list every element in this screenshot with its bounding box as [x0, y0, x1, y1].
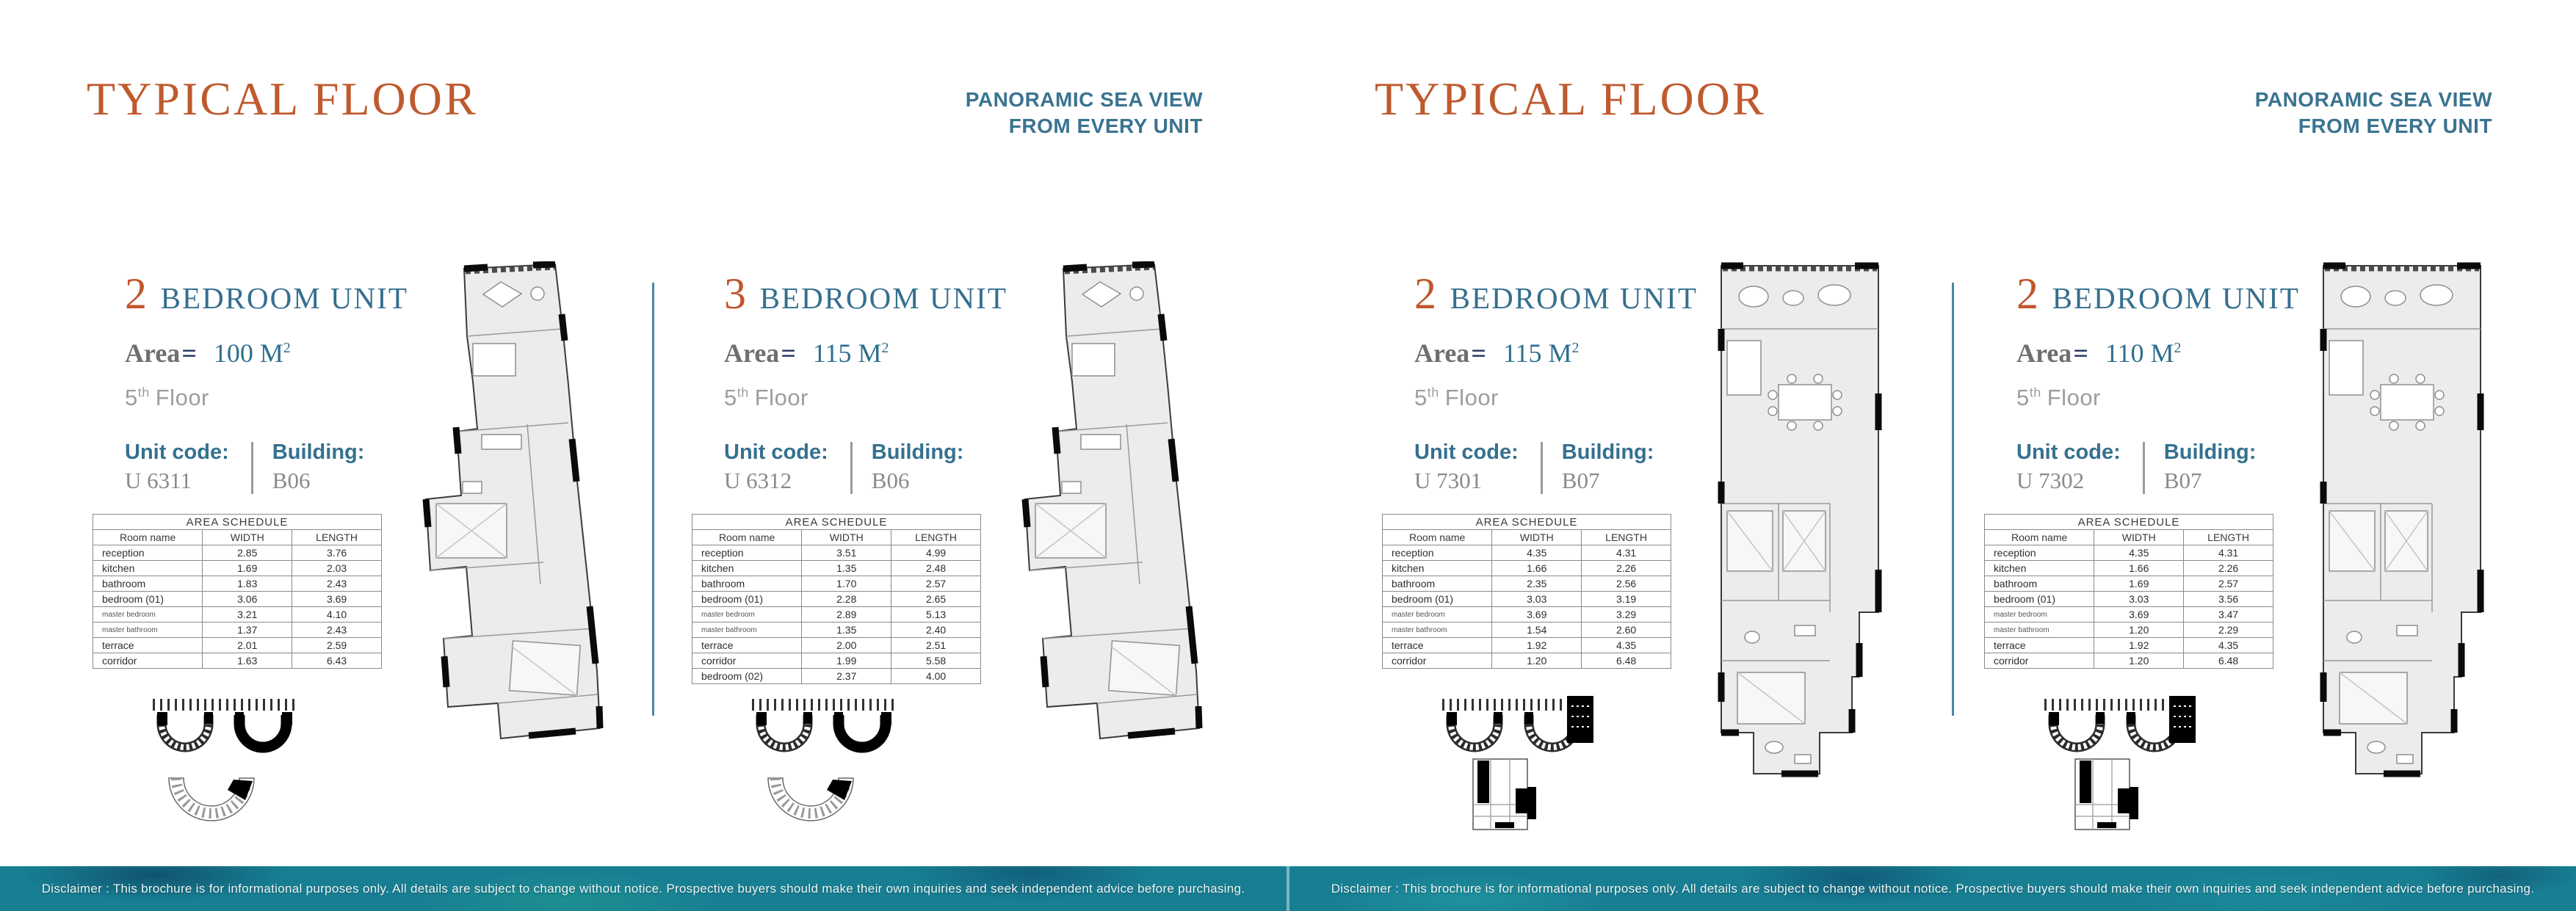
unit-type-heading: 3 BEDROOM UNIT	[724, 269, 1007, 319]
table-row: reception2.853.76	[93, 545, 382, 561]
bedroom-unit-label: BEDROOM UNIT	[161, 281, 408, 315]
table-row: terrace1.924.35	[1383, 638, 1671, 653]
table-row: kitchen1.662.26	[1383, 561, 1671, 576]
table-row: master bedroom3.214.10	[93, 607, 382, 623]
unit-code-block: Unit code: U 6311	[125, 440, 229, 494]
unit-type-heading: 2 BEDROOM UNIT	[1414, 269, 1698, 319]
floor-number: 5	[2016, 385, 2030, 410]
table-row: bathroom2.352.56	[1383, 576, 1671, 592]
tagline: PANORAMIC SEA VIEW FROM EVERY UNIT	[2177, 87, 2492, 139]
panel-divider-line	[652, 283, 654, 716]
table-row: master bedroom2.895.13	[692, 607, 981, 623]
building-label: Building:	[872, 440, 964, 465]
area-label: Area	[724, 338, 779, 368]
table-header: Room name	[1383, 530, 1492, 545]
tagline-line-2: FROM EVERY UNIT	[2177, 113, 2492, 139]
table-cell: 2.28	[802, 592, 891, 607]
table-title: AREA SCHEDULE	[1985, 515, 2273, 530]
table-cell: terrace	[93, 638, 203, 653]
table-cell: 6.43	[292, 653, 382, 669]
table-header: WIDTH	[2094, 530, 2184, 545]
table-title: AREA SCHEDULE	[692, 515, 981, 530]
footer-strip-left: Disclaimer : This brochure is for inform…	[0, 866, 1287, 911]
floor-ordinal: th	[737, 385, 749, 400]
table-cell: master bedroom	[1985, 607, 2094, 623]
brochure-spread: TYPICAL FLOOR PANORAMIC SEA VIEW FROM EV…	[0, 0, 2576, 911]
building-value: B06	[272, 468, 365, 494]
table-row: reception4.354.31	[1383, 545, 1671, 561]
area-number: 100 M	[214, 338, 283, 368]
table-cell: 3.47	[2184, 607, 2273, 623]
table-cell: 2.43	[292, 623, 382, 638]
table-cell: 2.01	[203, 638, 292, 653]
building-block: Building: B06	[272, 440, 365, 494]
floor-number: 5	[125, 385, 138, 410]
unit-code-label: Unit code:	[2016, 440, 2121, 465]
table-cell: 1.37	[203, 623, 292, 638]
disclaimer-text: Disclaimer : This brochure is for inform…	[42, 882, 1245, 896]
unit-code-building-row: Unit code: U 6311 Building: B06	[125, 440, 364, 494]
area-value: 100 M2	[214, 338, 291, 368]
table-cell: reception	[692, 545, 802, 561]
table-header: LENGTH	[1582, 530, 1671, 545]
table-row: terrace2.002.51	[692, 638, 981, 653]
table-cell: terrace	[692, 638, 802, 653]
area-schedule: AREA SCHEDULERoom nameWIDTHLENGTHrecepti…	[692, 514, 981, 684]
unit-type-heading: 2 BEDROOM UNIT	[2016, 269, 2300, 319]
table-title: AREA SCHEDULE	[1383, 515, 1671, 530]
area-number: 115 M	[813, 338, 882, 368]
area-row: Area= 100 M2	[125, 338, 291, 369]
table-cell: bathroom	[692, 576, 802, 592]
area-schedule: AREA SCHEDULERoom nameWIDTHLENGTHrecepti…	[93, 514, 382, 669]
table-cell: 3.19	[1582, 592, 1671, 607]
table-cell: 2.26	[1582, 561, 1671, 576]
table-cell: 2.60	[1582, 623, 1671, 638]
floor-word: Floor	[755, 385, 808, 410]
area-label: Area	[125, 338, 180, 368]
table-header: Room name	[93, 530, 203, 545]
table-cell: corridor	[1985, 653, 2094, 669]
table-cell: terrace	[1383, 638, 1492, 653]
table-cell: 1.66	[2094, 561, 2184, 576]
equals-sign: =	[181, 338, 197, 368]
floor-ordinal: th	[1428, 385, 1439, 400]
area-sup: 2	[882, 340, 889, 356]
table-cell: 4.31	[2184, 545, 2273, 561]
table-row: bathroom1.692.57	[1985, 576, 2273, 592]
table-cell: 4.35	[2184, 638, 2273, 653]
unit-code-value: U 7301	[1414, 468, 1519, 494]
table-row: kitchen1.352.48	[692, 561, 981, 576]
building-locator-map	[1429, 692, 1598, 831]
table-row: corridor1.206.48	[1383, 653, 1671, 669]
table-cell: bathroom	[1383, 576, 1492, 592]
footer-image-strip: Disclaimer : This brochure is for inform…	[0, 866, 2576, 911]
tagline-line-1: PANORAMIC SEA VIEW	[887, 87, 1203, 113]
area-schedule-table: AREA SCHEDULERoom nameWIDTHLENGTHrecepti…	[692, 514, 981, 684]
table-header: WIDTH	[802, 530, 891, 545]
table-cell: 1.70	[802, 576, 891, 592]
floor-word: Floor	[1445, 385, 1499, 410]
table-cell: reception	[1383, 545, 1492, 561]
table-cell: bedroom (02)	[692, 669, 802, 684]
table-cell: 3.06	[203, 592, 292, 607]
table-header: WIDTH	[1492, 530, 1582, 545]
building-locator-map	[2031, 692, 2200, 831]
table-cell: corridor	[1383, 653, 1492, 669]
table-cell: reception	[93, 545, 203, 561]
bedroom-count: 2	[2016, 269, 2038, 318]
table-row: bedroom (01)3.033.56	[1985, 592, 2273, 607]
floor-plan-drawing	[419, 261, 604, 780]
unit-panel: 2 BEDROOM UNIT Area= 115 M2 5thFloor Uni…	[1400, 266, 1914, 853]
table-row: bedroom (01)3.063.69	[93, 592, 382, 607]
table-cell: bathroom	[93, 576, 203, 592]
building-value: B07	[2164, 468, 2257, 494]
table-cell: 2.85	[203, 545, 292, 561]
table-row: master bathroom1.372.43	[93, 623, 382, 638]
table-cell: 2.59	[292, 638, 382, 653]
unit-code-label: Unit code:	[1414, 440, 1519, 465]
equals-sign: =	[781, 338, 796, 368]
unit-code-value: U 6311	[125, 468, 229, 494]
area-value: 115 M2	[813, 338, 889, 368]
table-cell: 1.20	[2094, 653, 2184, 669]
table-cell: 2.51	[891, 638, 981, 653]
table-cell: 5.13	[891, 607, 981, 623]
building-block: Building: B07	[1562, 440, 1654, 494]
table-row: bedroom (02)2.374.00	[692, 669, 981, 684]
table-cell: 1.92	[1492, 638, 1582, 653]
table-cell: bedroom (01)	[1985, 592, 2094, 607]
table-row: terrace2.012.59	[93, 638, 382, 653]
equals-sign: =	[1471, 338, 1486, 368]
building-block: Building: B06	[872, 440, 964, 494]
unit-panel: 2 BEDROOM UNIT Area= 100 M2 5thFloor Uni…	[110, 266, 624, 853]
table-cell: 3.69	[1492, 607, 1582, 623]
floor-ordinal: th	[138, 385, 150, 400]
table-row: master bedroom3.693.29	[1383, 607, 1671, 623]
table-row: master bedroom3.693.47	[1985, 607, 2273, 623]
table-row: corridor1.206.48	[1985, 653, 2273, 669]
unit-code-label: Unit code:	[724, 440, 828, 465]
table-cell: kitchen	[1985, 561, 2094, 576]
vertical-divider	[2143, 442, 2145, 494]
building-block: Building: B07	[2164, 440, 2257, 494]
table-cell: 1.92	[2094, 638, 2184, 653]
unit-code-block: Unit code: U 6312	[724, 440, 828, 494]
table-row: corridor1.995.58	[692, 653, 981, 669]
bedroom-unit-label: BEDROOM UNIT	[1450, 281, 1698, 315]
area-sup: 2	[283, 340, 291, 356]
table-cell: 2.35	[1492, 576, 1582, 592]
table-cell: 3.03	[2094, 592, 2184, 607]
table-row: kitchen1.692.03	[93, 561, 382, 576]
table-cell: 3.76	[292, 545, 382, 561]
bedroom-count: 2	[125, 269, 147, 318]
table-cell: bedroom (01)	[692, 592, 802, 607]
panel-divider-line	[1952, 283, 1954, 716]
bedroom-count: 3	[724, 269, 746, 318]
table-cell: 3.03	[1492, 592, 1582, 607]
table-row: reception3.514.99	[692, 545, 981, 561]
table-row: corridor1.636.43	[93, 653, 382, 669]
area-schedule: AREA SCHEDULERoom nameWIDTHLENGTHrecepti…	[1984, 514, 2273, 669]
unit-code-label: Unit code:	[125, 440, 229, 465]
table-cell: 2.43	[292, 576, 382, 592]
table-row: bedroom (01)2.282.65	[692, 592, 981, 607]
table-header: Room name	[1985, 530, 2094, 545]
table-cell: 2.29	[2184, 623, 2273, 638]
area-row: Area= 115 M2	[724, 338, 889, 369]
area-number: 115 M	[1503, 338, 1572, 368]
floor-word: Floor	[156, 385, 209, 410]
area-row: Area= 110 M2	[2016, 338, 2181, 369]
table-cell: master bathroom	[93, 623, 203, 638]
table-cell: 4.31	[1582, 545, 1671, 561]
table-header: LENGTH	[891, 530, 981, 545]
floor-row: 5thFloor	[2016, 385, 2101, 411]
table-cell: 6.48	[1582, 653, 1671, 669]
table-cell: 2.89	[802, 607, 891, 623]
table-cell: 1.69	[203, 561, 292, 576]
table-cell: bathroom	[1985, 576, 2094, 592]
table-cell: 1.63	[203, 653, 292, 669]
table-cell: 1.99	[802, 653, 891, 669]
table-cell: master bathroom	[1985, 623, 2094, 638]
unit-panel: 3 BEDROOM UNIT Area= 115 M2 5thFloor Uni…	[709, 266, 1223, 853]
tagline-line-1: PANORAMIC SEA VIEW	[2177, 87, 2492, 113]
table-cell: kitchen	[1383, 561, 1492, 576]
table-title: AREA SCHEDULE	[93, 515, 382, 530]
table-cell: 4.35	[1492, 545, 1582, 561]
bedroom-unit-label: BEDROOM UNIT	[760, 281, 1007, 315]
table-cell: 2.56	[1582, 576, 1671, 592]
table-row: bedroom (01)3.033.19	[1383, 592, 1671, 607]
area-sup: 2	[2174, 340, 2182, 356]
vertical-divider	[1541, 442, 1543, 494]
table-cell: 5.58	[891, 653, 981, 669]
area-number: 110 M	[2105, 338, 2174, 368]
table-row: terrace1.924.35	[1985, 638, 2273, 653]
floor-number: 5	[724, 385, 737, 410]
table-cell: 2.57	[891, 576, 981, 592]
table-cell: master bedroom	[93, 607, 203, 623]
table-cell: corridor	[93, 653, 203, 669]
vertical-divider	[251, 442, 253, 494]
bedroom-count: 2	[1414, 269, 1436, 318]
footer-strip-right: Disclaimer : This brochure is for inform…	[1287, 866, 2576, 911]
area-sup: 2	[1572, 340, 1580, 356]
table-cell: master bathroom	[692, 623, 802, 638]
unit-code-building-row: Unit code: U 7302 Building: B07	[2016, 440, 2256, 494]
table-cell: reception	[1985, 545, 2094, 561]
table-cell: 2.00	[802, 638, 891, 653]
table-cell: 1.83	[203, 576, 292, 592]
page-title: TYPICAL FLOOR	[1375, 72, 1766, 126]
table-cell: bedroom (01)	[1383, 592, 1492, 607]
table-cell: 3.21	[203, 607, 292, 623]
floor-word: Floor	[2047, 385, 2101, 410]
floor-plan-drawing	[1018, 261, 1203, 780]
table-cell: 2.48	[891, 561, 981, 576]
table-row: master bathroom1.542.60	[1383, 623, 1671, 638]
table-cell: 1.20	[1492, 653, 1582, 669]
table-cell: master bedroom	[1383, 607, 1492, 623]
table-header: WIDTH	[203, 530, 292, 545]
area-value: 115 M2	[1503, 338, 1580, 368]
table-cell: 4.10	[292, 607, 382, 623]
table-cell: 4.35	[2094, 545, 2184, 561]
tagline: PANORAMIC SEA VIEW FROM EVERY UNIT	[887, 87, 1203, 139]
table-row: kitchen1.662.26	[1985, 561, 2273, 576]
table-cell: 2.65	[891, 592, 981, 607]
table-cell: 2.26	[2184, 561, 2273, 576]
table-cell: 3.56	[2184, 592, 2273, 607]
floor-ordinal: th	[2030, 385, 2041, 400]
area-schedule: AREA SCHEDULERoom nameWIDTHLENGTHrecepti…	[1382, 514, 1671, 669]
table-cell: 1.35	[802, 561, 891, 576]
page-title: TYPICAL FLOOR	[87, 72, 478, 126]
table-cell: 1.20	[2094, 623, 2184, 638]
table-cell: 2.37	[802, 669, 891, 684]
unit-code-block: Unit code: U 7302	[2016, 440, 2121, 494]
table-header: Room name	[692, 530, 802, 545]
floor-plan-drawing	[2310, 261, 2495, 780]
tagline-line-2: FROM EVERY UNIT	[887, 113, 1203, 139]
table-cell: 3.69	[292, 592, 382, 607]
table-cell: 4.35	[1582, 638, 1671, 653]
area-schedule-table: AREA SCHEDULERoom nameWIDTHLENGTHrecepti…	[93, 514, 382, 669]
floor-row: 5thFloor	[1414, 385, 1499, 411]
building-label: Building:	[1562, 440, 1654, 465]
area-label: Area	[1414, 338, 1469, 368]
table-cell: 2.40	[891, 623, 981, 638]
vertical-divider	[850, 442, 853, 494]
table-cell: kitchen	[692, 561, 802, 576]
table-cell: bedroom (01)	[93, 592, 203, 607]
building-locator-map	[739, 692, 908, 831]
table-cell: 1.69	[2094, 576, 2184, 592]
table-cell: master bathroom	[1383, 623, 1492, 638]
area-value: 110 M2	[2105, 338, 2182, 368]
unit-panel: 2 BEDROOM UNIT Area= 110 M2 5thFloor Uni…	[2002, 266, 2516, 853]
table-cell: 4.99	[891, 545, 981, 561]
table-row: bathroom1.832.43	[93, 576, 382, 592]
unit-code-value: U 6312	[724, 468, 828, 494]
building-label: Building:	[272, 440, 365, 465]
table-cell: 3.51	[802, 545, 891, 561]
table-cell: 1.54	[1492, 623, 1582, 638]
equals-sign: =	[2073, 338, 2088, 368]
floor-row: 5thFloor	[125, 385, 209, 411]
table-header: LENGTH	[2184, 530, 2273, 545]
table-cell: 3.29	[1582, 607, 1671, 623]
unit-code-block: Unit code: U 7301	[1414, 440, 1519, 494]
table-row: reception4.354.31	[1985, 545, 2273, 561]
table-cell: kitchen	[93, 561, 203, 576]
table-cell: terrace	[1985, 638, 2094, 653]
area-row: Area= 115 M2	[1414, 338, 1579, 369]
building-value: B06	[872, 468, 964, 494]
table-cell: 2.03	[292, 561, 382, 576]
building-value: B07	[1562, 468, 1654, 494]
area-schedule-table: AREA SCHEDULERoom nameWIDTHLENGTHrecepti…	[1984, 514, 2273, 669]
area-label: Area	[2016, 338, 2072, 368]
table-cell: 3.69	[2094, 607, 2184, 623]
table-row: master bathroom1.202.29	[1985, 623, 2273, 638]
table-cell: 4.00	[891, 669, 981, 684]
floor-row: 5thFloor	[724, 385, 808, 411]
unit-type-heading: 2 BEDROOM UNIT	[125, 269, 408, 319]
unit-code-value: U 7302	[2016, 468, 2121, 494]
bedroom-unit-label: BEDROOM UNIT	[2052, 281, 2300, 315]
table-cell: master bedroom	[692, 607, 802, 623]
table-cell: 1.35	[802, 623, 891, 638]
table-cell: corridor	[692, 653, 802, 669]
table-cell: 6.48	[2184, 653, 2273, 669]
table-row: master bathroom1.352.40	[692, 623, 981, 638]
building-locator-map	[140, 692, 308, 831]
building-label: Building:	[2164, 440, 2257, 465]
disclaimer-text: Disclaimer : This brochure is for inform…	[1331, 882, 2535, 896]
unit-code-building-row: Unit code: U 6312 Building: B06	[724, 440, 963, 494]
table-row: bathroom1.702.57	[692, 576, 981, 592]
unit-code-building-row: Unit code: U 7301 Building: B07	[1414, 440, 1654, 494]
table-cell: 2.57	[2184, 576, 2273, 592]
table-cell: 1.66	[1492, 561, 1582, 576]
table-header: LENGTH	[292, 530, 382, 545]
area-schedule-table: AREA SCHEDULERoom nameWIDTHLENGTHrecepti…	[1382, 514, 1671, 669]
floor-number: 5	[1414, 385, 1428, 410]
floor-plan-drawing	[1708, 261, 1893, 780]
